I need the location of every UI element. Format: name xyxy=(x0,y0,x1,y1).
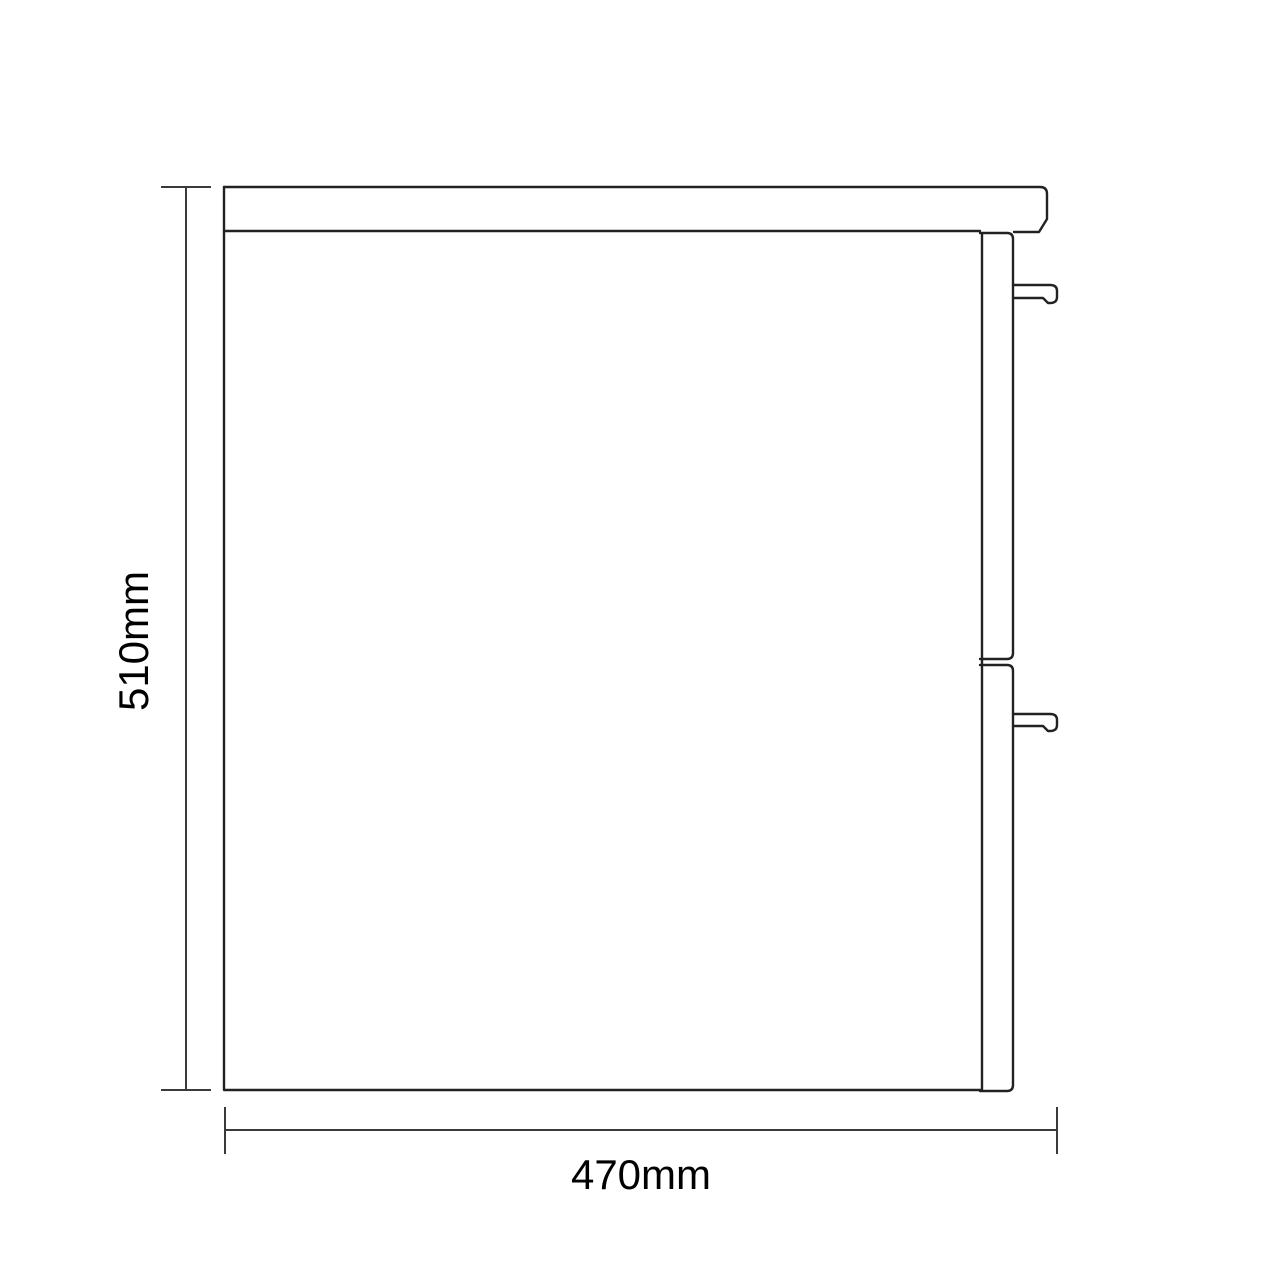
drawer-front-top xyxy=(980,233,1013,659)
width-dimension-label: 470mm xyxy=(571,1151,711,1198)
technical-drawing-canvas: 510mm 470mm xyxy=(0,0,1280,1280)
drawer-handle-bottom xyxy=(1013,714,1057,731)
cabinet-drawing xyxy=(224,187,1057,1091)
countertop xyxy=(224,187,1047,232)
drawer-front-bottom xyxy=(980,665,1013,1091)
cabinet-side-elevation-diagram: 510mm 470mm xyxy=(0,0,1280,1280)
width-dimension: 470mm xyxy=(225,1107,1057,1198)
drawer-handle-top xyxy=(1013,285,1057,303)
height-dimension: 510mm xyxy=(110,187,211,1090)
cabinet-body xyxy=(224,187,982,1090)
height-dimension-label: 510mm xyxy=(110,571,157,711)
